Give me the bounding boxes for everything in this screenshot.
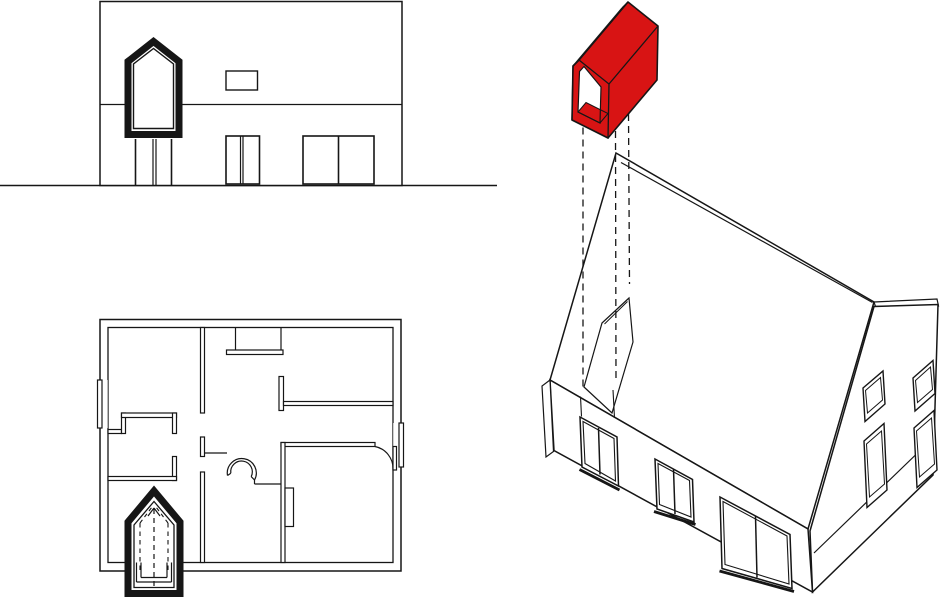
floor-plan-view xyxy=(98,320,404,594)
diagram-canvas xyxy=(0,0,942,600)
architectural-diagram-page xyxy=(0,0,942,600)
entry-elevation-view xyxy=(0,2,497,186)
highlighted-entry-volume-3d xyxy=(572,2,658,138)
axonometric-house-view xyxy=(542,114,939,592)
